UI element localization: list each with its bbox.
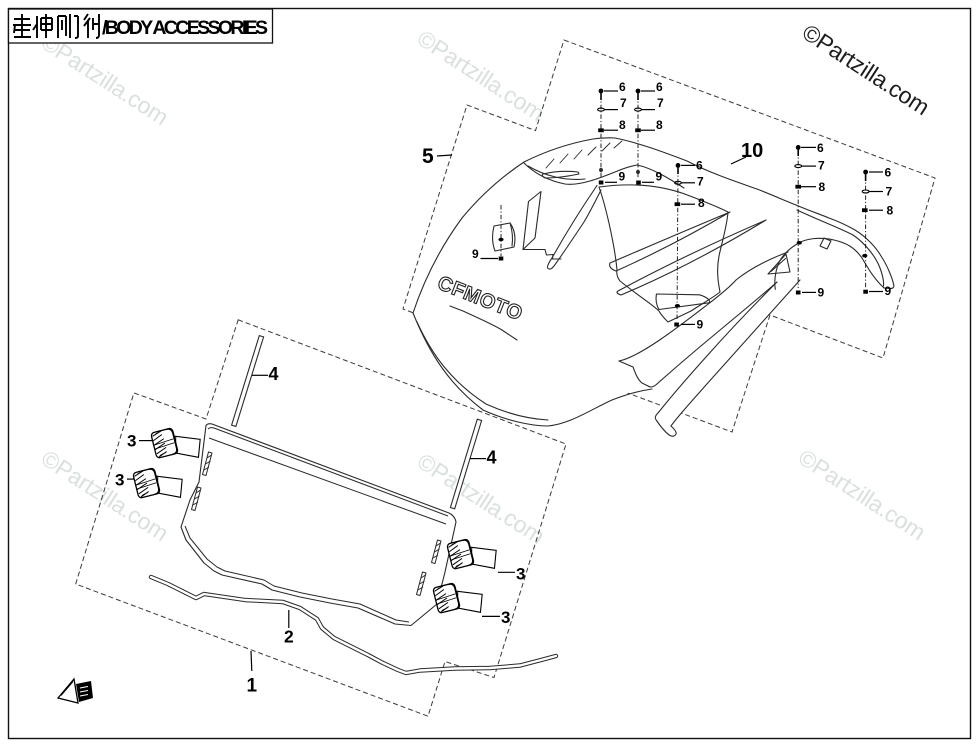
svg-text:6: 6 [817,141,824,155]
svg-text:6: 6 [696,159,703,173]
svg-text:2: 2 [284,627,294,647]
svg-text:8: 8 [656,118,663,132]
svg-text:©Partzilla.com: ©Partzilla.com [37,29,173,130]
svg-text:4: 4 [487,448,497,468]
svg-text:©Partzilla.com: ©Partzilla.com [798,19,934,120]
svg-text:9: 9 [885,284,892,298]
svg-text:9: 9 [472,247,479,261]
svg-text:8: 8 [887,204,894,218]
svg-text:8: 8 [819,180,826,194]
svg-text:9: 9 [619,170,626,184]
svg-text:3: 3 [127,432,136,451]
svg-text:©Partzilla.com: ©Partzilla.com [413,25,549,126]
svg-text:9: 9 [656,170,663,184]
svg-text:4: 4 [269,364,279,384]
svg-text:8: 8 [698,196,705,210]
svg-text:5: 5 [422,145,434,168]
svg-text:7: 7 [697,175,704,189]
svg-text:7: 7 [818,159,825,173]
svg-text:/BODY ACCESSORIES: /BODY ACCESSORIES [102,17,268,39]
svg-text:9: 9 [818,286,825,300]
svg-text:6: 6 [885,166,892,180]
svg-text:6: 6 [656,80,663,94]
svg-text:1: 1 [247,676,258,697]
svg-text:©Partzilla.com: ©Partzilla.com [794,444,930,545]
svg-text:9: 9 [697,318,704,332]
svg-text:7: 7 [620,96,627,110]
svg-text:3: 3 [115,471,124,490]
svg-text:7: 7 [657,96,664,110]
svg-text:3: 3 [501,608,510,627]
svg-text:8: 8 [619,118,626,132]
svg-text:7: 7 [886,185,893,199]
svg-text:10: 10 [741,140,763,162]
svg-text:6: 6 [619,80,626,94]
svg-text:3: 3 [516,565,525,584]
